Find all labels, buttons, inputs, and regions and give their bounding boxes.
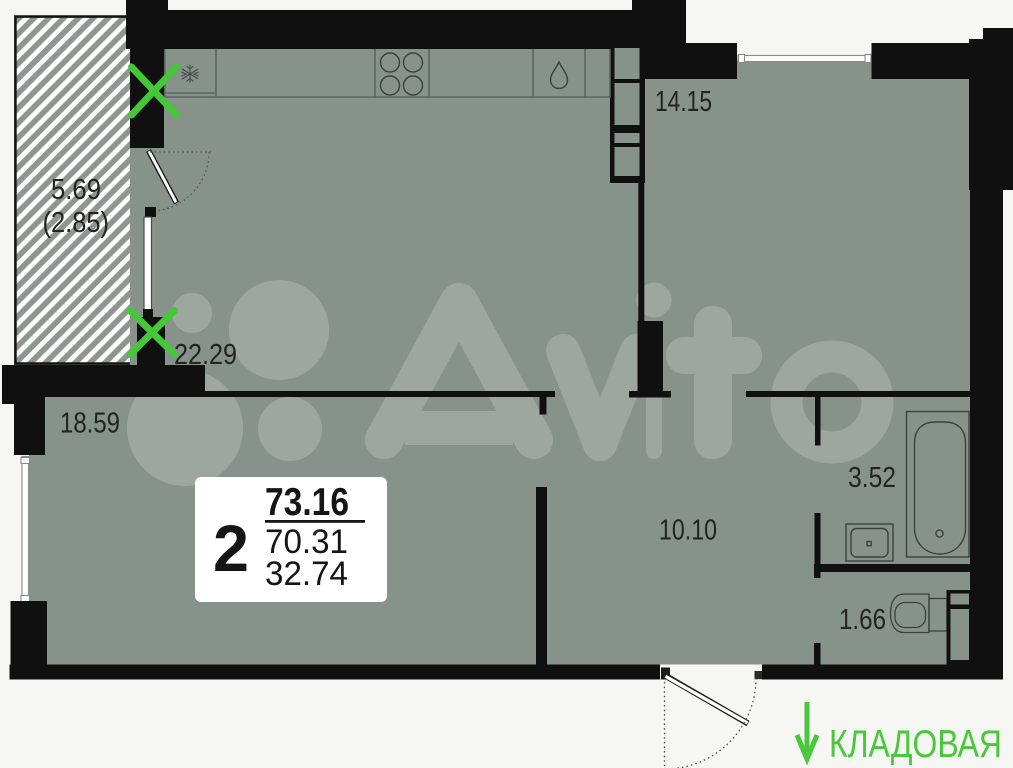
svg-text:10.10: 10.10 [659, 515, 717, 547]
svg-text:1.66: 1.66 [839, 604, 886, 636]
svg-text:5.69: 5.69 [51, 174, 101, 206]
svg-text:32.74: 32.74 [265, 555, 348, 593]
svg-text:18.59: 18.59 [60, 408, 120, 440]
svg-text:(2.85): (2.85) [43, 207, 110, 239]
svg-text:2: 2 [213, 511, 249, 585]
svg-text:3.52: 3.52 [848, 462, 896, 494]
svg-text:22.29: 22.29 [174, 339, 237, 371]
svg-text:КЛАДОВАЯ: КЛАДОВАЯ [829, 723, 1002, 766]
svg-text:73.16: 73.16 [265, 481, 349, 524]
svg-text:14.15: 14.15 [655, 86, 712, 118]
